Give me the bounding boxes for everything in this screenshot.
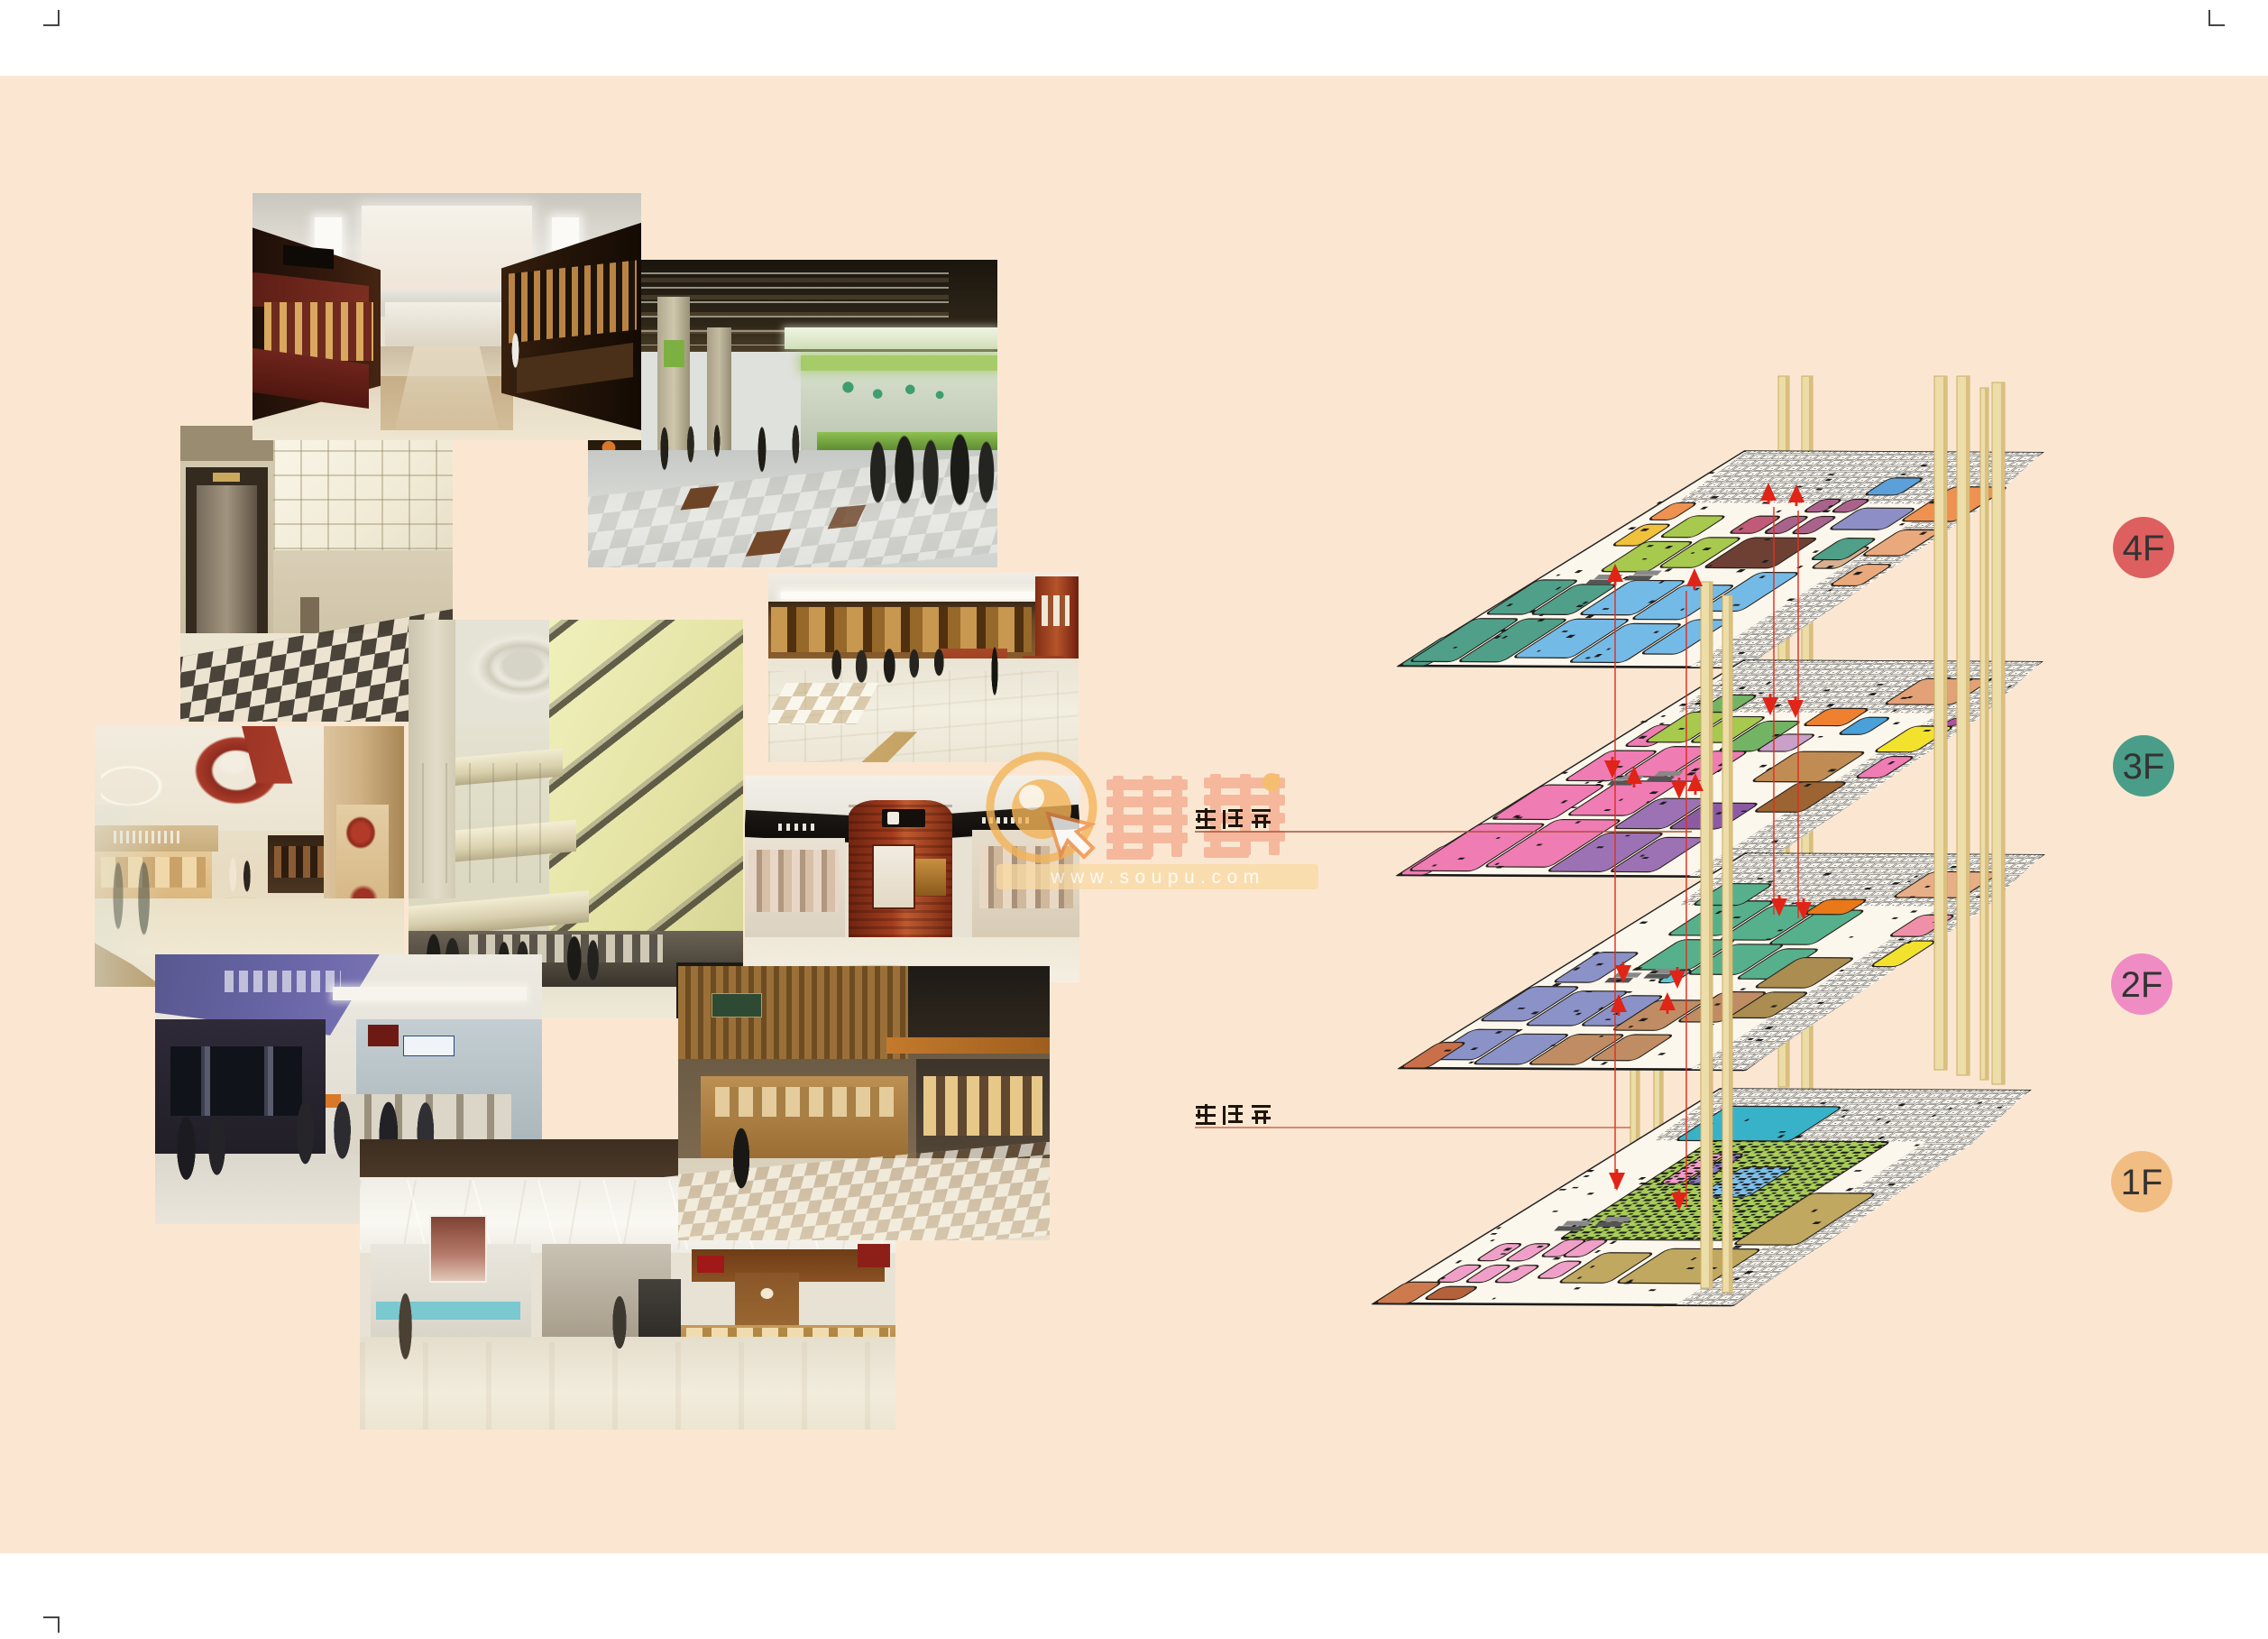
svg-text:3F: 3F — [2123, 747, 2165, 787]
svg-text:4F: 4F — [2123, 529, 2165, 568]
svg-text:2F: 2F — [2121, 965, 2163, 1005]
svg-text:1F: 1F — [2121, 1163, 2163, 1202]
